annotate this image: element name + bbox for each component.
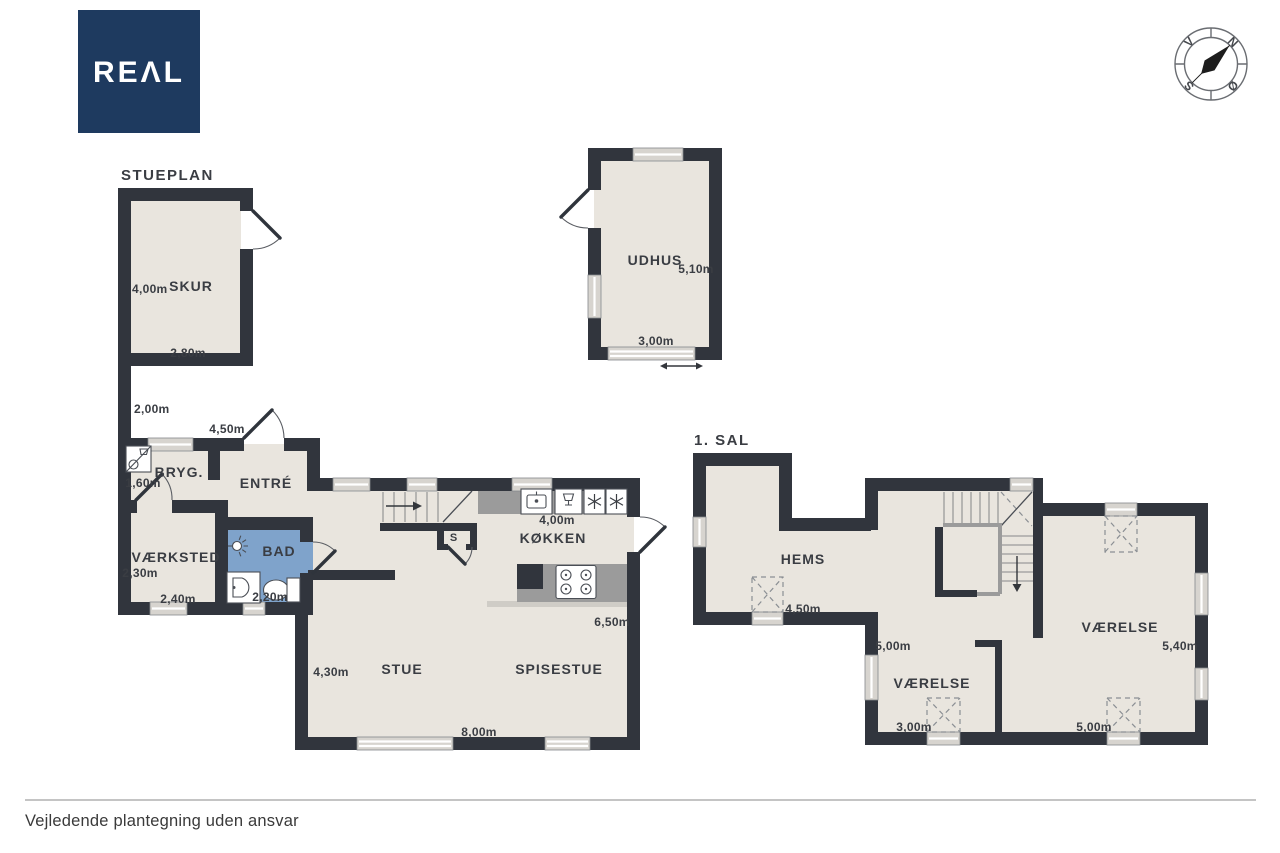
logo-wordmark: REΛL xyxy=(93,56,185,89)
entry-door xyxy=(244,410,284,438)
stove-icon xyxy=(556,566,596,599)
window xyxy=(357,737,453,750)
stair-railing xyxy=(998,527,1002,594)
floorplan-page: REΛL N Ø S V STUEPLAN 1. SAL xyxy=(0,0,1280,853)
dim-hems-width: 4,50m xyxy=(785,602,821,616)
dim-koekken-height: 6,50m xyxy=(594,615,630,629)
dim-entre-width: 4,50m xyxy=(209,422,245,436)
compass-west-label: V xyxy=(1181,34,1197,50)
window xyxy=(927,732,960,745)
laundry-sink-icon xyxy=(126,446,151,472)
dim-skur-width: 2,80m xyxy=(170,346,206,360)
room-label-entre: ENTRÉ xyxy=(240,475,292,491)
window xyxy=(1107,732,1140,745)
dim-stue-height: 4,30m xyxy=(313,665,349,679)
window xyxy=(407,478,437,491)
dim-skur-height: 4,00m xyxy=(132,282,168,296)
dim-vaerelse-large-height: 5,40m xyxy=(1162,639,1198,653)
window xyxy=(1105,503,1137,516)
room-label-bad: BAD xyxy=(262,543,295,559)
compass-east-label: Ø xyxy=(1225,78,1242,95)
room-label-vaerelse-large: VÆRELSE xyxy=(1081,619,1158,635)
closet-label: S xyxy=(450,532,457,544)
skur-floor xyxy=(124,194,241,359)
dim-vaerelse-small-height: 5,00m xyxy=(875,639,911,653)
dishwasher-icon xyxy=(555,489,582,514)
room-label-spisestue: SPISESTUE xyxy=(515,661,603,677)
kitchen-exterior-door xyxy=(640,517,665,552)
compass-rose-icon: N Ø S V xyxy=(1175,28,1247,100)
dim-bad-width: 2,20m xyxy=(252,590,288,604)
stair-railing xyxy=(977,592,1000,596)
room-label-koekken: KØKKEN xyxy=(520,530,587,546)
dim-bryg-width: 1,60m xyxy=(125,476,161,490)
window xyxy=(588,275,601,318)
room-label-vaerksted: VÆRKSTED xyxy=(132,549,221,565)
dim-stue-width: 8,00m xyxy=(461,725,497,739)
room-label-bryg: BRYG. xyxy=(155,464,204,480)
footer: Vejledende plantegning uden ansvar xyxy=(25,800,1256,830)
window xyxy=(333,478,370,491)
skur-door xyxy=(253,211,280,249)
first-floor-title: 1. SAL xyxy=(694,432,750,449)
udhus-door xyxy=(561,190,588,228)
sliding-door-arrow xyxy=(660,363,703,370)
dim-koekken-width: 4,00m xyxy=(539,513,575,527)
window xyxy=(865,655,878,700)
dim-udhus-height: 5,10m xyxy=(678,262,714,276)
freezer-icon xyxy=(584,489,605,514)
ground-floor-title: STUEPLAN xyxy=(121,167,214,184)
window xyxy=(752,612,783,625)
dim-wall-segment: 2,00m xyxy=(134,402,170,416)
window xyxy=(693,517,706,547)
dim-vaerelse-small-width: 3,00m xyxy=(896,720,932,734)
window xyxy=(1195,668,1208,700)
window xyxy=(1010,478,1033,491)
room-label-hems: HEMS xyxy=(781,551,825,567)
island-cabinet xyxy=(517,564,543,589)
stair-railing xyxy=(943,523,1002,527)
dim-vaerelse-large-width: 5,00m xyxy=(1076,720,1112,734)
room-label-skur: SKUR xyxy=(169,278,213,294)
kitchen-sink-icon xyxy=(521,489,552,514)
window xyxy=(608,347,695,360)
window xyxy=(633,148,683,161)
floorplan-canvas: REΛL N Ø S V STUEPLAN 1. SAL xyxy=(0,0,1280,853)
brand-logo: REΛL xyxy=(78,10,200,133)
window xyxy=(545,737,590,750)
dim-vaerksted-height: 2,30m xyxy=(122,566,158,580)
window xyxy=(148,438,193,451)
room-label-vaerelse-small: VÆRELSE xyxy=(893,675,970,691)
footer-disclaimer: Vejledende plantegning uden ansvar xyxy=(25,812,299,830)
dim-vaerksted-width: 2,40m xyxy=(160,592,196,606)
freezer-icon xyxy=(606,489,627,514)
dim-udhus-width: 3,00m xyxy=(638,334,674,348)
window xyxy=(1195,573,1208,615)
room-label-udhus: UDHUS xyxy=(628,252,683,268)
room-label-stue: STUE xyxy=(381,661,422,677)
